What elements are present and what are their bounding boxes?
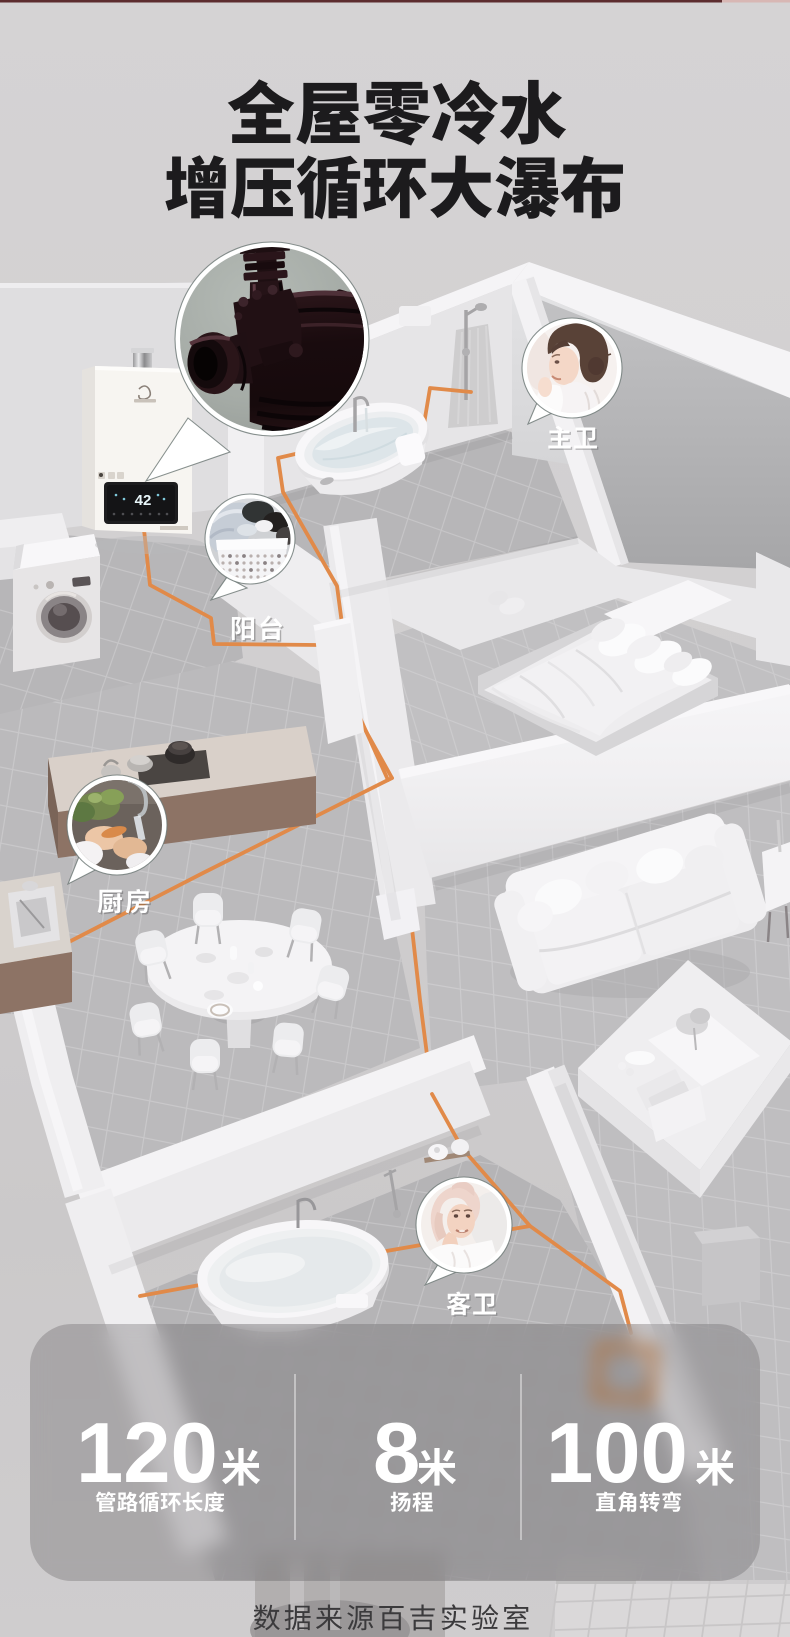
svg-text:8: 8	[373, 1406, 420, 1501]
svg-text:120: 120	[76, 1406, 218, 1501]
svg-text:100: 100	[546, 1406, 688, 1501]
